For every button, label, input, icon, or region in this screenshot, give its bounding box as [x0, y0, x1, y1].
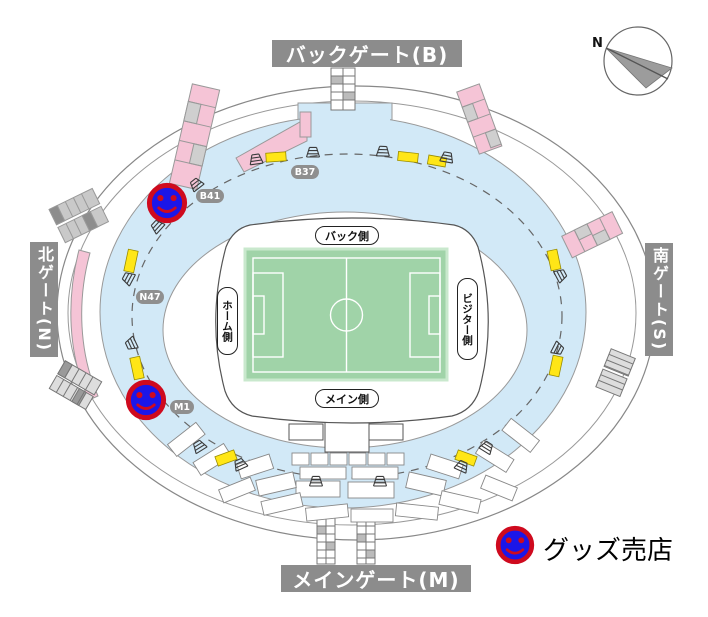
stand-label-home: ホーム側 — [217, 287, 238, 355]
compass-north-letter: N — [592, 36, 603, 51]
stadium-map-graphic — [0, 0, 708, 617]
north-gate-label: 北ゲート(N) — [30, 242, 58, 357]
gate-number-b37: B37 — [291, 165, 319, 179]
back-gate-label: バックゲート(B) — [272, 40, 462, 67]
legend-goods-shop-icon — [498, 528, 532, 562]
soccer-pitch — [245, 249, 447, 380]
stadium-map: バックゲート(B) メインゲート(M) 北ゲート(N) 南ゲート(S) バック側… — [0, 0, 708, 617]
main-gate-label: メインゲート(M) — [281, 565, 471, 592]
goods-shop-marker-m1 — [128, 382, 163, 417]
legend-goods-shop-label: グッズ売店 — [543, 530, 673, 567]
stand-label-back: バック側 — [315, 226, 379, 245]
stand-label-visitor: ビジター側 — [457, 278, 478, 360]
gate-number-m1: M1 — [170, 400, 194, 414]
compass-north-arrow-icon — [604, 27, 672, 95]
stand-label-main: メイン側 — [315, 389, 379, 408]
gate-number-n47: N47 — [136, 290, 164, 304]
goods-shop-marker-b41 — [149, 185, 184, 220]
south-gate-label: 南ゲート(S) — [645, 243, 673, 356]
gate-number-b41: B41 — [196, 189, 224, 203]
